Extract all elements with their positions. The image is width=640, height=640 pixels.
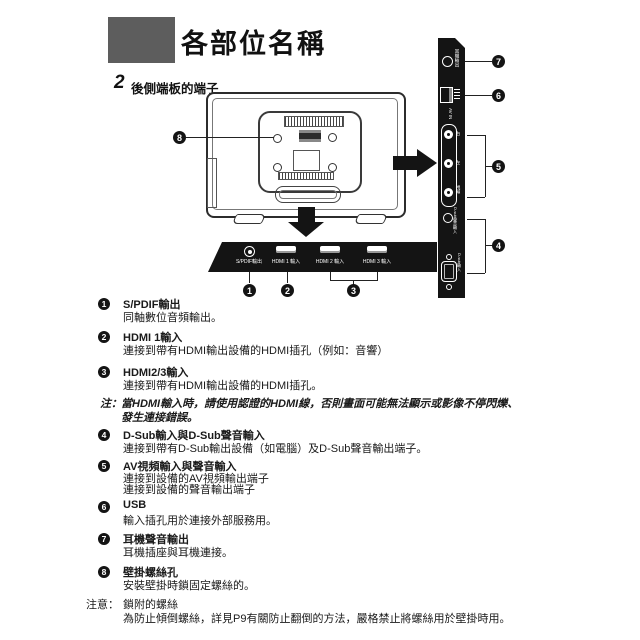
list-num-1: 1 bbox=[98, 298, 110, 310]
list-desc-5b: 連接到設備的聲音輸出端子 bbox=[123, 481, 255, 497]
list-num-4: 4 bbox=[98, 429, 110, 441]
list-num-8: 8 bbox=[98, 566, 110, 578]
list-desc-6: 輸入插孔用於連接外部服務用。 bbox=[123, 512, 277, 528]
list-num-2: 2 bbox=[98, 331, 110, 343]
leader-line-1 bbox=[249, 272, 250, 283]
rca-dot bbox=[447, 191, 450, 194]
hdmi2-port-label: HDMI 2 輸入 bbox=[310, 259, 350, 265]
headphone-jack-icon bbox=[442, 56, 453, 67]
page-title: 各部位名稱 bbox=[181, 22, 326, 61]
section-title: 後側端板的端子 bbox=[131, 78, 219, 97]
rca-dot bbox=[447, 133, 450, 136]
leader-line-7 bbox=[465, 61, 492, 62]
manual-page: 各部位名稱 2 後側端板的端子 8 S/PDIF輸出 HDMI 1 輸入 HDM… bbox=[0, 0, 640, 640]
vent-grille-bottom bbox=[278, 172, 334, 180]
callout-3: 3 bbox=[347, 284, 360, 297]
tv-stand-right bbox=[353, 214, 388, 224]
leader-line-2 bbox=[287, 272, 288, 283]
callout-1: 1 bbox=[243, 284, 256, 297]
bracket-3-bar bbox=[330, 280, 378, 281]
section-marker-block bbox=[108, 17, 175, 63]
leader-line-6 bbox=[465, 95, 492, 96]
av-audio-right-jack-icon bbox=[444, 130, 453, 139]
caution-prefix: 注意： bbox=[86, 596, 119, 612]
av-left-label: 左 bbox=[456, 160, 461, 168]
hdmi2-port-icon bbox=[320, 246, 340, 253]
list-desc-2: 連接到帶有HDMI輸出設備的HDMI插孔（例如：音響） bbox=[123, 342, 388, 358]
arrow-down-icon bbox=[288, 222, 324, 237]
arrow-right-icon bbox=[417, 149, 437, 177]
vga-screw-bottom bbox=[446, 284, 452, 290]
list-desc-1: 同軸數位音頻輸出。 bbox=[123, 309, 222, 325]
hdmi3-port-label: HDMI 3 輸入 bbox=[357, 259, 397, 265]
av-video-label: 視頻 bbox=[456, 185, 461, 200]
list-desc-8: 安裝壁掛時鎖固定螺絲的。 bbox=[123, 577, 255, 593]
usb-port-pins bbox=[454, 89, 460, 99]
list-num-3: 3 bbox=[98, 366, 110, 378]
wall-mount-screw-hole bbox=[328, 133, 337, 142]
hdmi-note-line2: 發生連接錯誤。 bbox=[121, 409, 198, 425]
vga-port-icon bbox=[441, 261, 457, 282]
list-desc-3: 連接到帶有HDMI輸出設備的HDMI插孔。 bbox=[123, 377, 322, 393]
av-video-jack-icon bbox=[444, 188, 453, 197]
rca-dot bbox=[447, 162, 450, 165]
sticker-outline bbox=[293, 150, 320, 171]
usb-port-icon bbox=[440, 87, 453, 103]
wall-mount-screw-hole bbox=[273, 163, 282, 172]
hdmi1-port-icon bbox=[276, 246, 296, 253]
arrow-down-shaft bbox=[298, 207, 315, 223]
bracket-5-bottom bbox=[467, 197, 485, 198]
bracket-3-left bbox=[330, 272, 331, 280]
callout-6: 6 bbox=[492, 89, 505, 102]
vent-grille-top bbox=[284, 116, 344, 127]
hdmi-note-prefix: 注： bbox=[100, 395, 122, 411]
callout-8: 8 bbox=[173, 131, 186, 144]
list-desc-4: 連接到帶有D-Sub輸出設備（如電腦）及D-Sub聲音輸出端子。 bbox=[123, 440, 427, 456]
callout-7: 7 bbox=[492, 55, 505, 68]
vga-screw-top bbox=[446, 254, 452, 260]
list-title-6: USB bbox=[123, 499, 146, 511]
list-num-6: 6 bbox=[98, 501, 110, 513]
hdmi3-port-icon bbox=[367, 246, 387, 253]
list-desc-7: 耳機插座與耳機連接。 bbox=[123, 544, 233, 560]
callout-4: 4 bbox=[492, 239, 505, 252]
wall-mount-screw-hole bbox=[328, 163, 337, 172]
bracket-4-bar bbox=[485, 219, 486, 273]
bracket-4-bottom bbox=[467, 273, 485, 274]
dsub-label: D-sub輸入 bbox=[457, 253, 462, 293]
av-audio-left-jack-icon bbox=[444, 159, 453, 168]
hdmi1-port-label: HDMI 1 輸入 bbox=[266, 259, 306, 265]
side-connector-recess bbox=[207, 158, 217, 208]
dsub-audio-jack-icon bbox=[443, 213, 453, 223]
bracket-5-top bbox=[467, 135, 485, 136]
av-in-label: AV IN bbox=[448, 108, 453, 122]
callout-2: 2 bbox=[281, 284, 294, 297]
bottom-recess-line bbox=[279, 190, 337, 199]
spdif-port-label: S/PDIF輸出 bbox=[229, 259, 269, 265]
list-num-5: 5 bbox=[98, 460, 110, 472]
bracket-3-right bbox=[377, 272, 378, 280]
caution-line2: 為防止傾倒螺絲，詳見P9有關防止翻倒的方法，嚴格禁止將螺絲用於壁掛時用。 bbox=[123, 610, 510, 626]
spdif-port-icon bbox=[244, 246, 255, 257]
headphone-jack-label: 耳機輸出 bbox=[455, 49, 460, 77]
bracket-4-top bbox=[467, 219, 485, 220]
dsub-audio-label: D-sub聲音輸入 bbox=[453, 207, 458, 255]
av-right-label: 右 bbox=[456, 131, 461, 139]
wall-mount-screw-hole bbox=[273, 134, 282, 143]
leader-line-8 bbox=[186, 137, 274, 138]
tv-stand-left bbox=[231, 214, 266, 224]
rating-label-block bbox=[299, 130, 321, 142]
spdif-port-dot bbox=[248, 250, 252, 254]
callout-5: 5 bbox=[492, 160, 505, 173]
arrow-right-shaft bbox=[393, 156, 418, 170]
list-num-7: 7 bbox=[98, 533, 110, 545]
section-number: 2 bbox=[114, 72, 125, 94]
